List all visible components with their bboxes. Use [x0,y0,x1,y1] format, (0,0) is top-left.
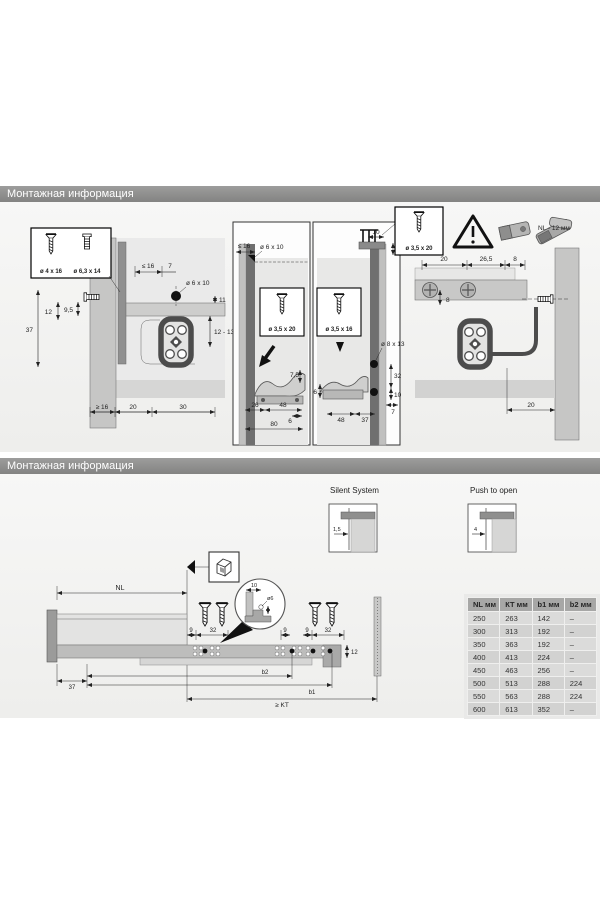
table-cell: 563 [500,690,531,702]
table-cell: 300 [468,625,499,637]
table-row: 250263142– [468,612,596,624]
dim-o6-detail: ø6 [267,596,273,602]
dim-20: 20 [129,404,137,411]
table-row: 550563288224 [468,690,596,702]
dim-7: 7 [168,263,172,270]
screw-size-right: ø 3,5 x 20 [405,246,433,252]
dim-kt: ≥ KT [275,702,289,709]
drawer-bottom-panel [126,303,225,316]
dim-b1: b1 [309,690,316,696]
table-row: 600613352– [468,703,596,715]
push-to-open-detail: 4 [468,504,516,552]
table-cell: 192 [533,625,564,637]
screw-rear-1 [309,603,321,626]
table-cell: 288 [533,677,564,689]
left-cabinet-section: ø 4 x 16 ø 6,3 x 14 ≤ 16 7 ø 6 x 10 11 1… [26,228,235,428]
drawer-front-cap [47,610,57,662]
table-cell: – [565,651,596,663]
dim-265: 26,5 [480,256,493,263]
rail-screw-2 [461,283,476,298]
dim-12: 12 [45,309,53,316]
table-cell: – [565,703,596,715]
dim-ge16: ≥ 16 [96,404,109,411]
table-cell: 413 [500,651,531,663]
screw-size-mid2: ø 3,5 x 16 [325,327,353,333]
dim-11: 11 [219,297,226,304]
table-cell: 613 [500,703,531,715]
table-row: 350363192– [468,638,596,650]
push-gap-dim: 4 [474,527,477,533]
front-panel-cap-push [480,512,514,519]
dimension-table: NL мм КТ мм b1 мм b2 мм 250263142– 30031… [467,597,597,716]
top-rail-strip [415,268,515,280]
drawer-interior-1 [255,258,308,445]
dim-48: 48 [279,402,287,409]
table-cell: 352 [533,703,564,715]
table-cell: 224 [533,651,564,663]
silent-system-label: Silent System [330,486,379,495]
dim-nl: NL [116,585,125,592]
dim-12: 12 [351,650,358,656]
dim-le16: ≤ 16 [142,263,155,270]
table-cell: 313 [500,625,531,637]
table-cell: 288 [533,690,564,702]
middle-detail-1: ≤ 16 ø 6 x 10 ø 3,5 x 20 7,5 26 48 6 80 [233,222,310,445]
runner-base-2 [323,390,363,399]
dim-37: 37 [26,327,34,334]
table-panel: NL мм КТ мм b1 мм b2 мм 250263142– 30031… [464,594,600,719]
silent-system-detail: 1,5 [329,504,377,552]
dim-9c: 9 [305,628,309,634]
middle-detail-2: 10 13 ø 3,5 x 16 ø 8 x 13 32 10 7 6 48 3… [313,218,405,445]
dim-20-right: 20 [440,256,448,263]
dim-le16-mid1: ≤ 16 [238,243,251,250]
screw-front-2 [216,603,228,626]
dim-o8x13: ø 8 x 13 [381,341,405,348]
screw-front-1 [199,603,211,626]
dim-32a: 32 [210,628,217,634]
table-cell: 400 [468,651,499,663]
table-cell: 600 [468,703,499,715]
push-to-open-label: Push to open [470,486,517,495]
dim-12-13: 12 - 13 [214,329,235,336]
cabinet-back-panel [555,248,579,440]
table-cell: 256 [533,664,564,676]
col-header-kt: КТ мм [500,598,531,611]
locking-clip-icon [499,221,531,240]
hole-lower [370,388,378,396]
catalog-page: { "s1": { "title": "Монтажная информация… [0,0,600,900]
table-row: 500513288224 [468,677,596,689]
dim-b2: b2 [262,670,269,676]
dim-6-mid2: 6 [313,389,317,396]
slide-side-view: NL 9 32 9 9 32 [47,552,381,709]
front-edge-arrow [187,560,195,574]
table-cell: 513 [500,677,531,689]
slide-runner [140,658,312,665]
screw-size-b: ø 6,3 x 14 [73,269,101,275]
dim-9b: 9 [283,628,287,634]
col-header-b2: b2 мм [565,598,596,611]
table-cell: – [565,612,596,624]
right-cabinet-section: 20 26,5 8 8 20 [415,248,579,440]
horizontal-screw-icon [84,293,99,301]
table-cell: 224 [565,677,596,689]
table-cell: 192 [533,638,564,650]
table-cell: 500 [468,677,499,689]
lower-band-right [415,380,555,398]
front-panel-outer [239,244,246,445]
screw-size-mid1: ø 3,5 x 20 [268,327,296,333]
dim-10-mid2: 10 [372,229,380,236]
slide-profile-icon-right [460,321,490,367]
dim-32b: 32 [325,628,332,634]
rail-screw-1 [423,283,438,298]
nl-offset-note: NL - 12 мм [538,225,570,232]
dim-75: 7,5 [290,372,299,379]
dim-32-mid2: 32 [394,373,402,380]
table-cell: – [565,664,596,676]
table-row: 400413224– [468,651,596,663]
detail-magnifier: 10 ø6 [235,579,285,629]
dim-48-mid2: 48 [337,417,345,424]
drawer-front-push [492,519,516,552]
horizontal-screw-right [538,295,553,303]
hole-upper [370,360,378,368]
dim-10-detail: 10 [251,583,257,589]
dim-30: 30 [179,404,187,411]
slide-profile-icon [161,319,191,365]
table-cell: 263 [500,612,531,624]
col-header-nl: NL мм [468,598,499,611]
dim-o6x10: ø 6 x 10 [186,280,210,287]
top-mounting-drawing: ø 4 x 16 ø 6,3 x 14 ≤ 16 7 ø 6 x 10 11 1… [10,202,590,452]
drawer-side-panel [57,614,187,645]
table-cell: – [565,638,596,650]
table-cell: 463 [500,664,531,676]
table-cell: 350 [468,638,499,650]
dim-80: 80 [270,421,278,428]
runner-bracket-right [486,307,536,354]
dim-7-mid2: 7 [391,409,395,416]
table-cell: – [565,625,596,637]
section2-title: Монтажная информация [7,460,134,472]
table-cell: 250 [468,612,499,624]
dim-o6x10-mid1: ø 6 x 10 [260,244,284,251]
silent-gap-dim: 1,5 [333,527,341,533]
table-row: 450463256– [468,664,596,676]
dim-37-bottom: 37 [69,685,76,691]
dim-26: 26 [251,402,259,409]
dim-95: 9,5 [64,307,73,314]
dim-37-mid2: 37 [361,417,369,424]
section1-title: Монтажная информация [7,188,134,200]
table-cell: 550 [468,690,499,702]
back-panel-inner [370,244,379,445]
front-panel-cap [341,512,375,519]
table-cell: 142 [533,612,564,624]
section1-header: Монтажная информация [0,186,600,202]
section2-header: Монтажная информация [0,458,600,474]
table-cell: 224 [565,690,596,702]
front-panel-inner [246,244,255,445]
drawer-back-panel [118,242,126,364]
top-right-icons: ø 3,5 x 20 NL - 12 мм [395,207,576,255]
table-row: 300313192– [468,625,596,637]
col-header-b1: b1 мм [533,598,564,611]
table-cell: 450 [468,664,499,676]
dim-8v: 8 [446,297,450,304]
dim-10b: 10 [394,392,402,399]
table-cell: 363 [500,638,531,650]
dim-8: 8 [513,256,517,263]
euro-screw-icon [83,234,91,249]
lower-band [105,380,225,398]
dim-9a: 9 [189,628,193,634]
drawer-front [351,519,375,552]
dim-6-mid1: 6 [288,418,292,425]
screw-size-a: ø 4 x 16 [40,269,63,275]
screw-rear-2 [326,603,338,626]
dim-20b: 20 [527,402,535,409]
